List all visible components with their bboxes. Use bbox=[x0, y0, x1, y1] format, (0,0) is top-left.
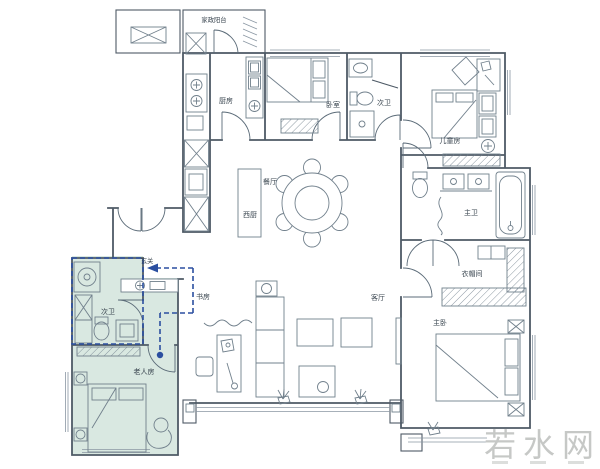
bath-top-fixtures bbox=[349, 59, 398, 137]
cloakroom-fixtures bbox=[442, 246, 526, 306]
room-label-entry: 玄关 bbox=[141, 256, 154, 265]
room-label-living: 客厅 bbox=[371, 293, 385, 302]
room-label-service-balcony: 家政阳台 bbox=[201, 15, 226, 24]
room-label-elder-room: 老人房 bbox=[134, 367, 155, 376]
master-bath-fixtures bbox=[413, 172, 526, 238]
floorplan-image: 家政阳台 厨房 卧室 次卫 儿童房 餐厅 西厨 主卫 玄关 书房 次卫 客厅 衣… bbox=[0, 0, 600, 469]
room-label-bath-top: 次卫 bbox=[377, 98, 391, 107]
room-label-kids-room: 儿童房 bbox=[440, 136, 461, 145]
room-label-bedroom: 卧室 bbox=[326, 100, 340, 109]
watermark-text: 若水网 bbox=[484, 426, 600, 464]
route-endpoint-dot bbox=[157, 352, 163, 358]
room-label-kitchen: 厨房 bbox=[219, 96, 233, 105]
room-label-study: 书房 bbox=[196, 292, 210, 301]
service-balcony-fixtures bbox=[186, 33, 206, 54]
room-label-master-bedroom: 主卧 bbox=[433, 318, 447, 327]
room-label-bath-left: 次卫 bbox=[101, 307, 115, 316]
entry-cabinet bbox=[121, 279, 178, 292]
west-kitchen-island bbox=[238, 169, 261, 237]
master-bedroom-furniture bbox=[436, 320, 524, 416]
room-label-cloakroom: 衣帽间 bbox=[462, 269, 483, 278]
room-label-west-kitchen: 西厨 bbox=[243, 211, 257, 219]
dining-table bbox=[276, 159, 348, 247]
kids-room-furniture bbox=[432, 57, 500, 166]
room-label-master-bath: 主卫 bbox=[464, 208, 478, 217]
kitchen-fixtures bbox=[185, 57, 264, 231]
floorplan-canvas: 家政阳台 厨房 卧室 次卫 儿童房 餐厅 西厨 主卫 玄关 书房 次卫 客厅 衣… bbox=[0, 0, 600, 469]
study-furniture bbox=[196, 320, 252, 392]
watermark: 若水网 bbox=[484, 426, 600, 464]
room-label-dining: 餐厅 bbox=[263, 177, 277, 186]
